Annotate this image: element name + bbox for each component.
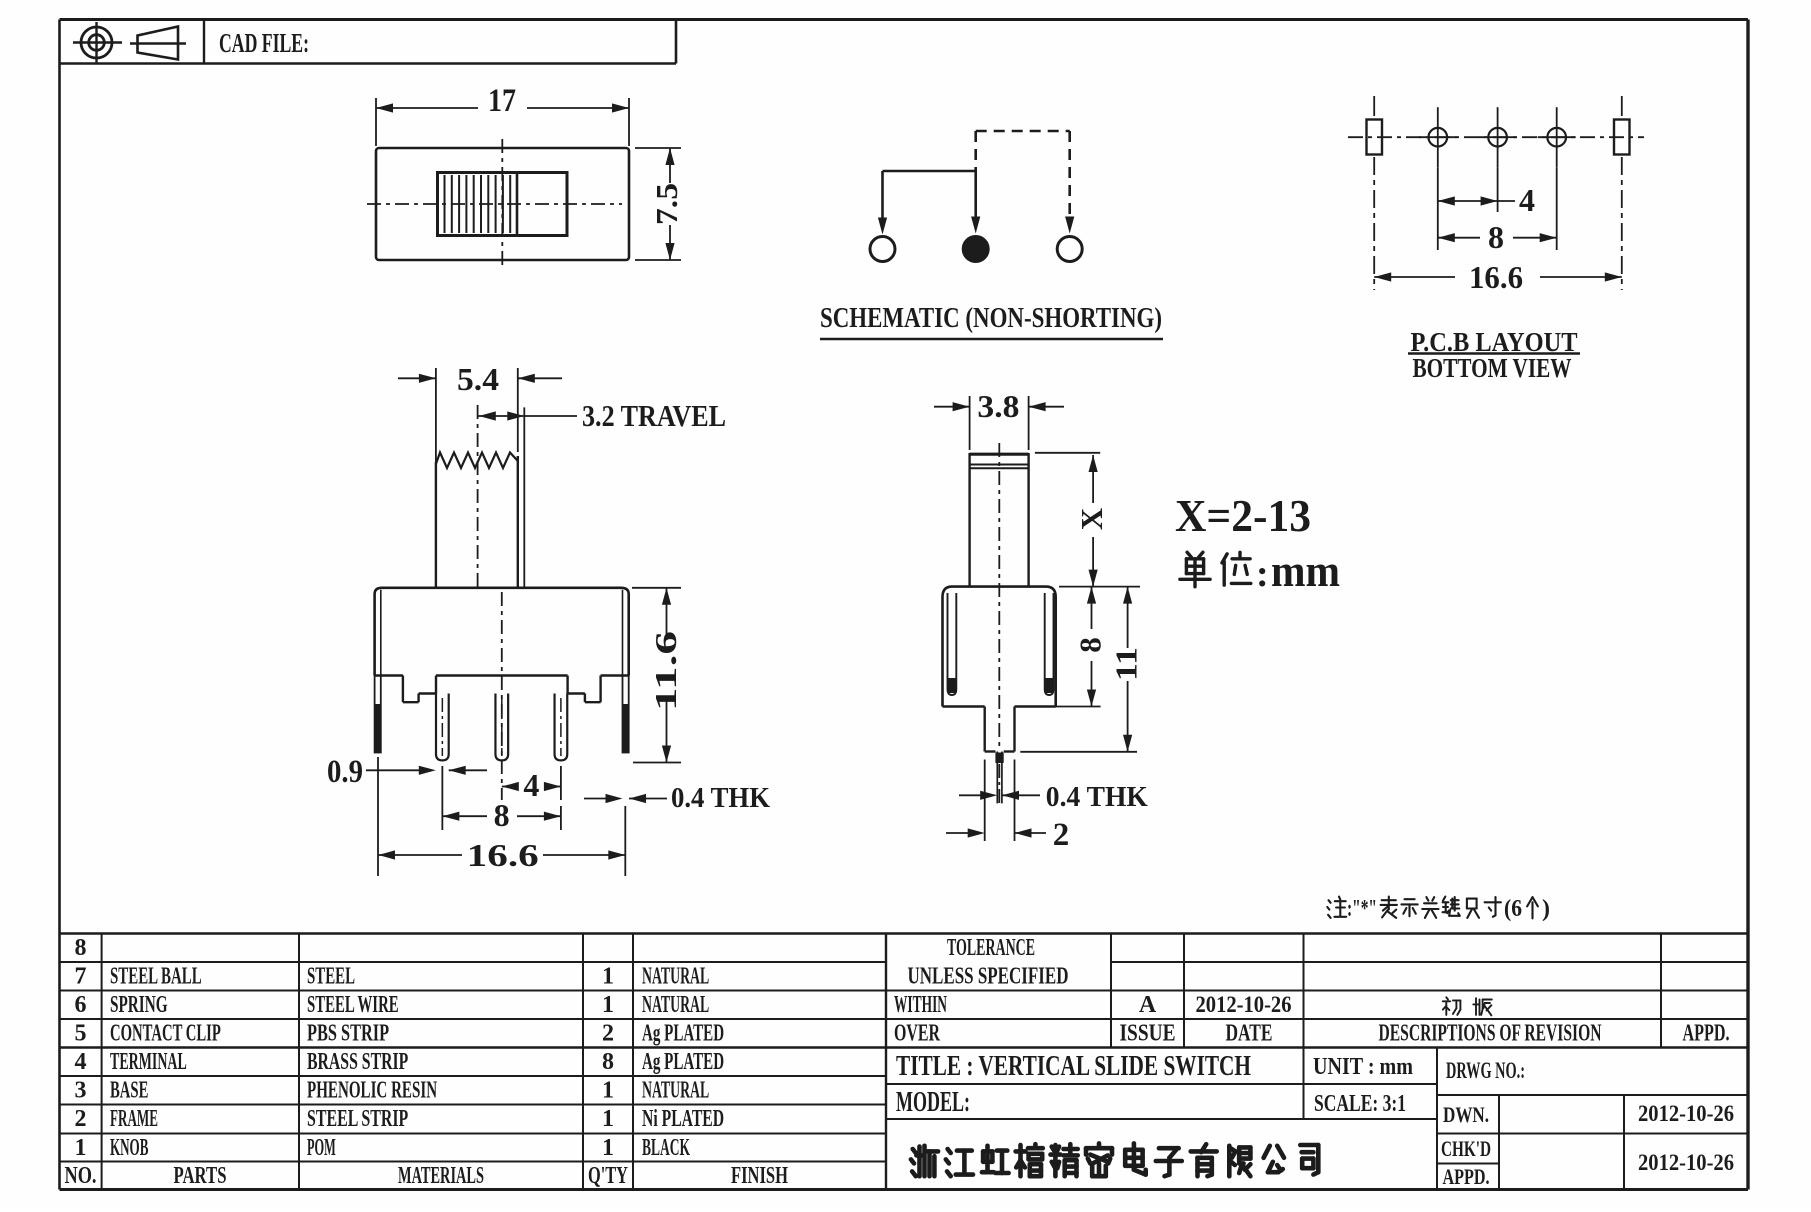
svg-text:DRWG NO.:: DRWG NO.: (1446, 1058, 1525, 1083)
svg-text:CONTACT CLIP: CONTACT CLIP (110, 1021, 221, 1047)
svg-text:Q'TY: Q'TY (588, 1163, 628, 1189)
svg-text:UNLESS SPECIFIED: UNLESS SPECIFIED (908, 964, 1069, 990)
svg-text:STEEL STRIP: STEEL STRIP (307, 1106, 408, 1132)
svg-text:TOLERANCE: TOLERANCE (947, 935, 1035, 961)
svg-text:1: 1 (602, 1106, 614, 1132)
svg-text:0.9: 0.9 (327, 754, 363, 790)
svg-text:16.6: 16.6 (467, 837, 539, 873)
svg-text:APPD.: APPD. (1443, 1164, 1490, 1189)
svg-text:17: 17 (488, 83, 516, 119)
svg-text:UNIT : mm: UNIT : mm (1313, 1054, 1413, 1080)
svg-text:TITLE : VERTICAL SLIDE SWITC: TITLE : VERTICAL SLIDE SWITCH (896, 1050, 1251, 1082)
svg-text:MODEL:: MODEL: (896, 1086, 970, 1118)
svg-text:4: 4 (1519, 182, 1535, 218)
svg-text:1: 1 (602, 1078, 614, 1104)
svg-text:STEEL BALL: STEEL BALL (110, 964, 202, 990)
svg-text:8: 8 (1073, 637, 1108, 653)
svg-text:BASE: BASE (110, 1078, 148, 1104)
svg-text:11.6: 11.6 (648, 631, 683, 711)
svg-text:PBS STRIP: PBS STRIP (307, 1021, 389, 1047)
svg-text:DWN.: DWN. (1443, 1102, 1489, 1127)
svg-text:Ag PLATED: Ag PLATED (642, 1049, 724, 1075)
svg-text:1: 1 (602, 992, 614, 1018)
svg-text:(6: (6 (1504, 896, 1522, 922)
svg-text:2: 2 (75, 1106, 87, 1132)
svg-text:1: 1 (602, 1135, 614, 1161)
svg-text::: : (1256, 553, 1269, 595)
svg-text:Ag PLATED: Ag PLATED (642, 1021, 724, 1047)
svg-text:1: 1 (75, 1135, 87, 1161)
svg-text:BLACK: BLACK (642, 1135, 690, 1161)
svg-text:7: 7 (75, 964, 87, 990)
svg-text:8: 8 (494, 797, 510, 833)
svg-text:CAD FILE:: CAD FILE: (219, 28, 309, 58)
svg-text:5: 5 (75, 1021, 87, 1047)
svg-text::"*": :"*" (1347, 896, 1377, 922)
svg-text:TERMINAL: TERMINAL (110, 1049, 187, 1075)
svg-text:16.6: 16.6 (1469, 259, 1523, 295)
svg-text:7.5: 7.5 (649, 183, 684, 225)
svg-text:SCHEMATIC (NON-SHORTING): SCHEMATIC (NON-SHORTING) (820, 303, 1162, 334)
svg-text:CHK'D: CHK'D (1441, 1136, 1491, 1161)
svg-text:2012-10-26: 2012-10-26 (1638, 1101, 1734, 1126)
svg-text:A: A (1139, 992, 1157, 1018)
svg-text:STEEL: STEEL (307, 964, 355, 990)
svg-text:6: 6 (75, 992, 87, 1018)
svg-text:FRAME: FRAME (110, 1106, 158, 1132)
svg-text:4: 4 (75, 1049, 87, 1075)
svg-text:SPRING: SPRING (110, 992, 168, 1018)
svg-text:PHENOLIC RESIN: PHENOLIC RESIN (307, 1078, 437, 1104)
svg-text:): ) (1542, 896, 1550, 922)
svg-text:FINISH: FINISH (731, 1163, 788, 1189)
svg-text:Ni PLATED: Ni PLATED (642, 1106, 724, 1132)
svg-text:DATE: DATE (1226, 1021, 1273, 1047)
svg-text:4: 4 (523, 767, 539, 803)
svg-text:ISSUE: ISSUE (1120, 1021, 1176, 1047)
svg-text:NATURAL: NATURAL (642, 964, 709, 990)
svg-text:WITHIN: WITHIN (894, 992, 947, 1018)
svg-text:0.4 THK: 0.4 THK (671, 783, 770, 814)
svg-text:DESCRIPTIONS OF REVISION: DESCRIPTIONS OF REVISION (1379, 1021, 1602, 1047)
svg-text:SCALE: 3:1: SCALE: 3:1 (1314, 1091, 1406, 1117)
svg-text:0.4 THK: 0.4 THK (1046, 781, 1148, 813)
svg-text:8: 8 (75, 935, 87, 961)
svg-text:2: 2 (1053, 817, 1070, 853)
svg-text:5.4: 5.4 (457, 361, 499, 397)
svg-text:APPD.: APPD. (1683, 1021, 1730, 1047)
svg-text:X: X (1074, 507, 1109, 530)
svg-text:STEEL WIRE: STEEL WIRE (307, 992, 399, 1018)
svg-text:NO.: NO. (65, 1163, 97, 1189)
svg-text:3.8: 3.8 (977, 388, 1019, 424)
svg-text:OVER: OVER (894, 1021, 940, 1047)
svg-text:X=2-13: X=2-13 (1175, 490, 1311, 541)
svg-text:1: 1 (602, 964, 614, 990)
svg-text:2012-10-26: 2012-10-26 (1638, 1150, 1734, 1175)
svg-text:3.2 TRAVEL: 3.2 TRAVEL (582, 398, 726, 433)
svg-text:KNOB: KNOB (110, 1135, 148, 1161)
svg-text:BRASS STRIP: BRASS STRIP (307, 1049, 408, 1075)
svg-text:mm: mm (1271, 545, 1340, 596)
svg-text:BOTTOM VIEW: BOTTOM VIEW (1413, 353, 1572, 383)
svg-text:MATERIALS: MATERIALS (398, 1163, 484, 1189)
svg-text:NATURAL: NATURAL (642, 992, 709, 1018)
svg-text:2012-10-26: 2012-10-26 (1196, 992, 1292, 1017)
svg-text:2: 2 (602, 1021, 614, 1047)
svg-text:PARTS: PARTS (174, 1163, 227, 1189)
svg-text:8: 8 (602, 1049, 614, 1075)
svg-text:NATURAL: NATURAL (642, 1078, 709, 1104)
svg-text:3: 3 (75, 1078, 87, 1104)
svg-text:8: 8 (1488, 219, 1504, 255)
svg-text:11: 11 (1109, 647, 1144, 681)
svg-text:POM: POM (307, 1135, 336, 1161)
